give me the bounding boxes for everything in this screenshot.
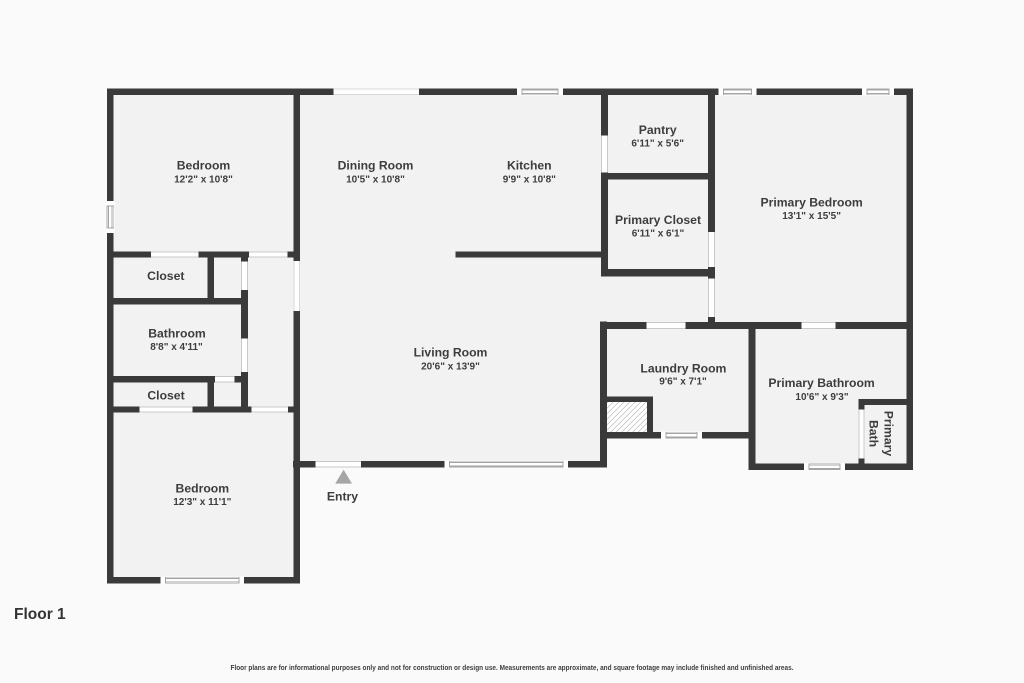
svg-text:Primary Closet: Primary Closet [615, 213, 701, 227]
svg-text:12'3" x 11'1": 12'3" x 11'1" [173, 497, 231, 508]
svg-text:Living Room: Living Room [414, 346, 488, 360]
svg-text:Bath: Bath [866, 420, 880, 447]
svg-text:Bedroom: Bedroom [176, 481, 230, 495]
svg-text:12'2" x 10'8": 12'2" x 10'8" [174, 174, 233, 185]
svg-text:Floor plans are for informatio: Floor plans are for informational purpos… [231, 665, 794, 672]
svg-text:Dining Room: Dining Room [338, 159, 414, 173]
svg-text:Kitchen: Kitchen [507, 159, 552, 173]
svg-text:10'5" x 10'8": 10'5" x 10'8" [346, 174, 405, 185]
svg-text:Primary: Primary [881, 411, 895, 457]
svg-text:Bedroom: Bedroom [177, 159, 231, 173]
svg-text:Primary Bathroom: Primary Bathroom [768, 376, 874, 390]
svg-text:13'1" x 15'5": 13'1" x 15'5" [782, 211, 841, 222]
svg-text:6'11" x 6'1": 6'11" x 6'1" [632, 229, 685, 240]
svg-text:Closet: Closet [147, 389, 184, 403]
svg-text:Closet: Closet [147, 269, 184, 283]
svg-text:Bathroom: Bathroom [148, 327, 206, 341]
svg-text:10'6" x 9'3": 10'6" x 9'3" [795, 392, 848, 403]
svg-text:Pantry: Pantry [639, 123, 677, 137]
svg-text:Entry: Entry [327, 490, 358, 504]
svg-text:8'8" x 4'11": 8'8" x 4'11" [150, 342, 203, 353]
svg-text:Primary Bedroom: Primary Bedroom [760, 196, 862, 210]
svg-text:9'6" x 7'1": 9'6" x 7'1" [659, 377, 707, 388]
svg-text:Laundry Room: Laundry Room [640, 362, 726, 376]
svg-text:20'6" x 13'9": 20'6" x 13'9" [421, 361, 480, 372]
svg-text:9'9" x 10'8": 9'9" x 10'8" [503, 174, 556, 185]
svg-text:6'11" x 5'6": 6'11" x 5'6" [631, 139, 684, 150]
svg-text:Floor 1: Floor 1 [14, 606, 66, 623]
